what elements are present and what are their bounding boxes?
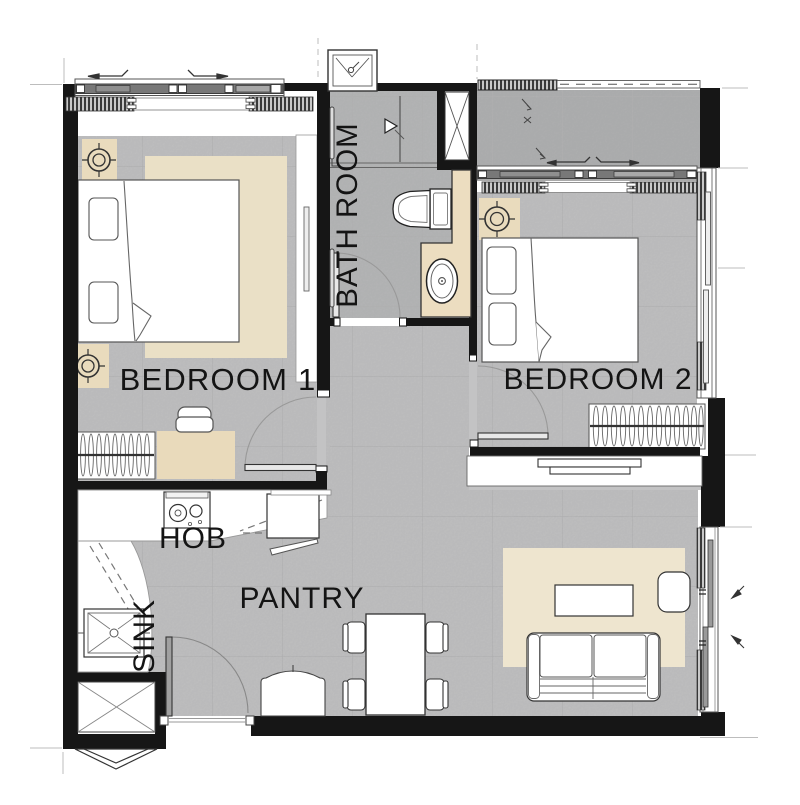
svg-text:PANTRY: PANTRY: [240, 582, 365, 615]
svg-text:SINK: SINK: [128, 599, 161, 673]
svg-text:BEDROOM 2: BEDROOM 2: [503, 363, 692, 396]
svg-text:BEDROOM 1: BEDROOM 1: [120, 362, 317, 397]
svg-text:HOB: HOB: [159, 522, 227, 555]
svg-text:BATH ROOM: BATH ROOM: [331, 122, 364, 307]
